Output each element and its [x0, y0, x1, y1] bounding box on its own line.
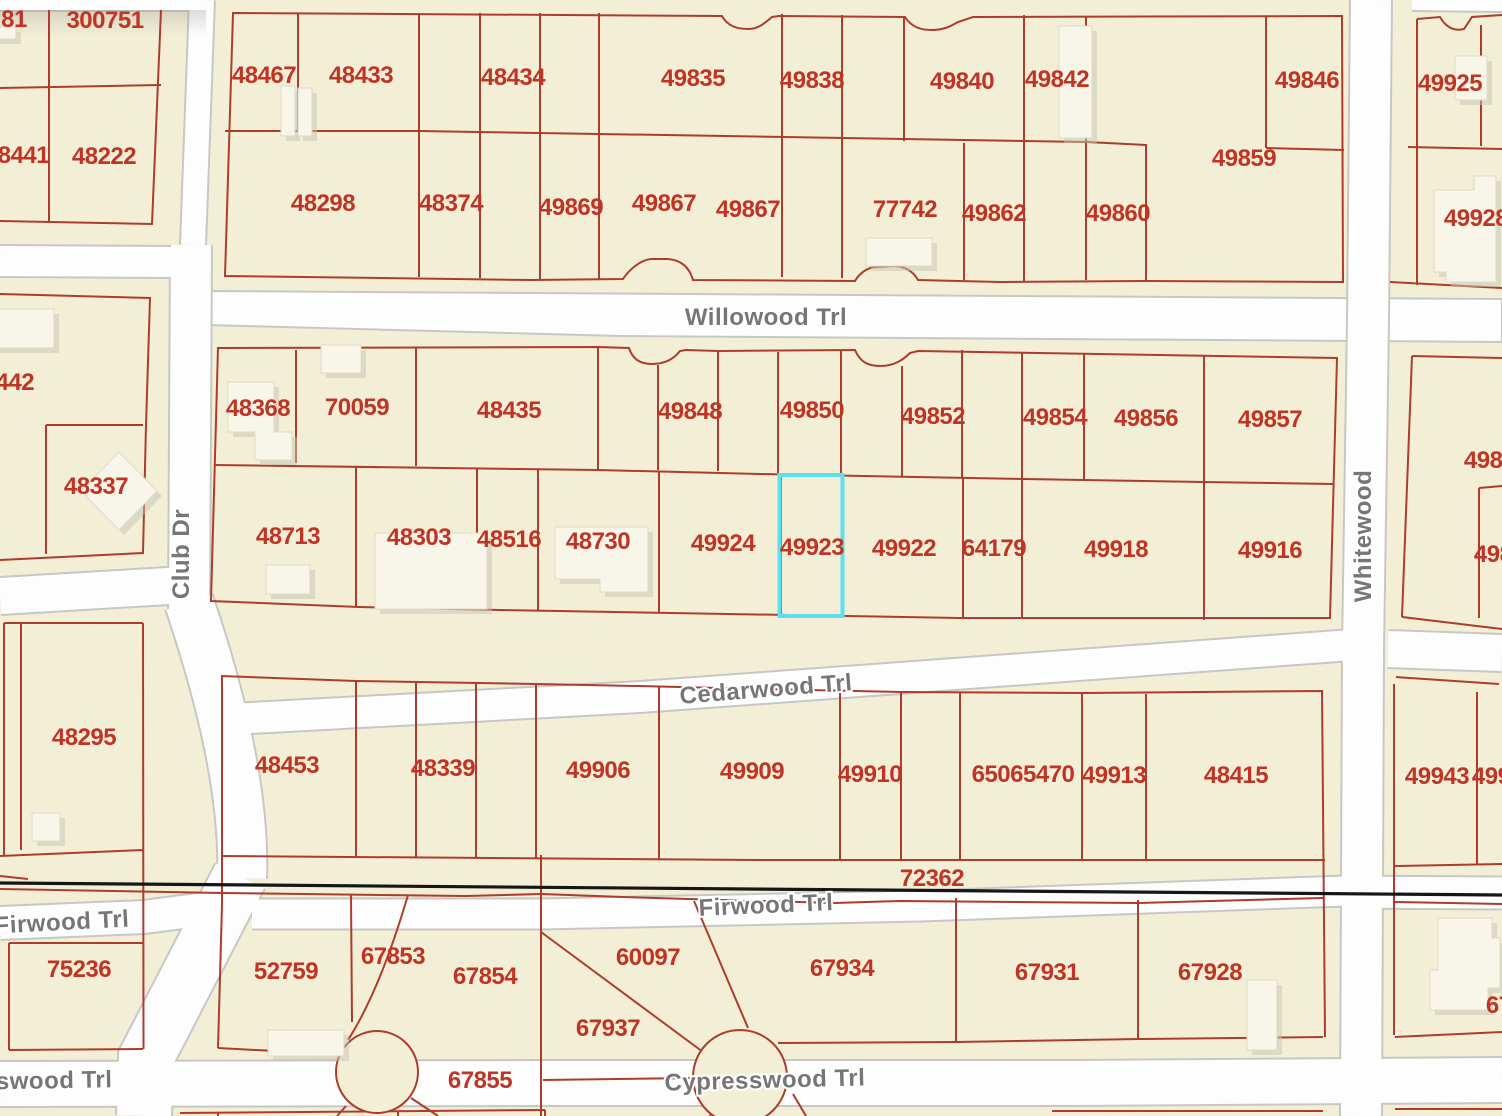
svg-text:67928: 67928 — [1178, 959, 1242, 986]
svg-text:48337: 48337 — [64, 473, 128, 500]
svg-text:49869: 49869 — [539, 194, 603, 221]
svg-text:Cypresswood Trl: Cypresswood Trl — [0, 1066, 113, 1097]
svg-text:49943: 49943 — [1472, 763, 1502, 790]
svg-text:48222: 48222 — [72, 143, 136, 170]
svg-text:49867: 49867 — [716, 196, 780, 223]
svg-text:49857: 49857 — [1238, 406, 1302, 433]
svg-text:49859: 49859 — [1212, 145, 1276, 172]
svg-text:49909: 49909 — [720, 758, 784, 785]
svg-text:48374: 48374 — [419, 190, 484, 217]
svg-text:65065470: 65065470 — [972, 761, 1075, 788]
svg-text:60097: 60097 — [616, 944, 680, 971]
svg-text:48298: 48298 — [291, 190, 355, 217]
svg-text:49835: 49835 — [661, 65, 725, 92]
svg-text:Cypresswood Trl: Cypresswood Trl — [664, 1064, 866, 1096]
svg-text:49860: 49860 — [1086, 200, 1150, 227]
svg-text:48339: 48339 — [411, 755, 475, 782]
svg-text:49924: 49924 — [691, 530, 756, 557]
svg-text:67853: 67853 — [361, 943, 425, 970]
svg-text:67925: 67925 — [1486, 992, 1502, 1019]
svg-text:48467: 48467 — [232, 62, 296, 89]
svg-text:49842: 49842 — [1025, 66, 1089, 93]
svg-text:70059: 70059 — [325, 394, 389, 421]
svg-text:48441: 48441 — [0, 142, 49, 169]
svg-text:49916: 49916 — [1238, 537, 1302, 564]
svg-text:48713: 48713 — [256, 523, 320, 550]
svg-text:48453: 48453 — [255, 752, 319, 779]
svg-text:Whitewood: Whitewood — [1350, 470, 1377, 602]
svg-text:49867: 49867 — [632, 190, 696, 217]
svg-text:64179: 64179 — [962, 535, 1026, 562]
svg-text:48433: 48433 — [329, 62, 393, 89]
svg-text:75236: 75236 — [47, 956, 111, 983]
svg-text:67934: 67934 — [810, 955, 875, 982]
svg-text:49862: 49862 — [962, 200, 1026, 227]
svg-text:49856: 49856 — [1114, 405, 1178, 432]
svg-text:Willowood Trl: Willowood Trl — [685, 304, 847, 331]
svg-text:300751: 300751 — [66, 7, 143, 34]
svg-text:49910: 49910 — [838, 761, 902, 788]
svg-text:49918: 49918 — [1084, 536, 1148, 563]
svg-text:48368: 48368 — [226, 395, 290, 422]
svg-text:49881: 49881 — [1474, 541, 1502, 568]
svg-text:48516: 48516 — [477, 526, 541, 553]
svg-text:81: 81 — [1, 6, 27, 33]
svg-text:48442: 48442 — [0, 369, 34, 396]
svg-text:49923: 49923 — [780, 534, 844, 561]
svg-text:49854: 49854 — [1023, 404, 1088, 431]
svg-text:48415: 48415 — [1204, 762, 1268, 789]
svg-text:49852: 49852 — [901, 403, 965, 430]
svg-text:49925: 49925 — [1418, 70, 1482, 97]
svg-text:49838: 49838 — [780, 67, 844, 94]
svg-text:49928: 49928 — [1444, 205, 1502, 232]
svg-text:49858: 49858 — [1464, 447, 1502, 474]
svg-text:48730: 48730 — [566, 528, 630, 555]
svg-text:49913: 49913 — [1082, 762, 1146, 789]
svg-text:67854: 67854 — [453, 963, 518, 990]
svg-text:49850: 49850 — [780, 397, 844, 424]
svg-text:48435: 48435 — [477, 397, 541, 424]
svg-text:49922: 49922 — [872, 535, 936, 562]
svg-text:Club Dr: Club Dr — [168, 509, 195, 599]
svg-text:48303: 48303 — [387, 524, 451, 551]
svg-text:48434: 48434 — [481, 64, 546, 91]
svg-text:49846: 49846 — [1275, 67, 1339, 94]
svg-text:49906: 49906 — [566, 757, 630, 784]
svg-text:67937: 67937 — [576, 1015, 640, 1042]
svg-text:48295: 48295 — [52, 724, 116, 751]
svg-text:52759: 52759 — [254, 958, 318, 985]
svg-text:49943: 49943 — [1405, 763, 1469, 790]
svg-text:49848: 49848 — [658, 398, 722, 425]
svg-text:67931: 67931 — [1015, 959, 1079, 986]
svg-text:67855: 67855 — [448, 1067, 512, 1094]
svg-text:49840: 49840 — [930, 68, 994, 95]
svg-text:72362: 72362 — [900, 865, 964, 892]
svg-text:77742: 77742 — [873, 196, 937, 223]
